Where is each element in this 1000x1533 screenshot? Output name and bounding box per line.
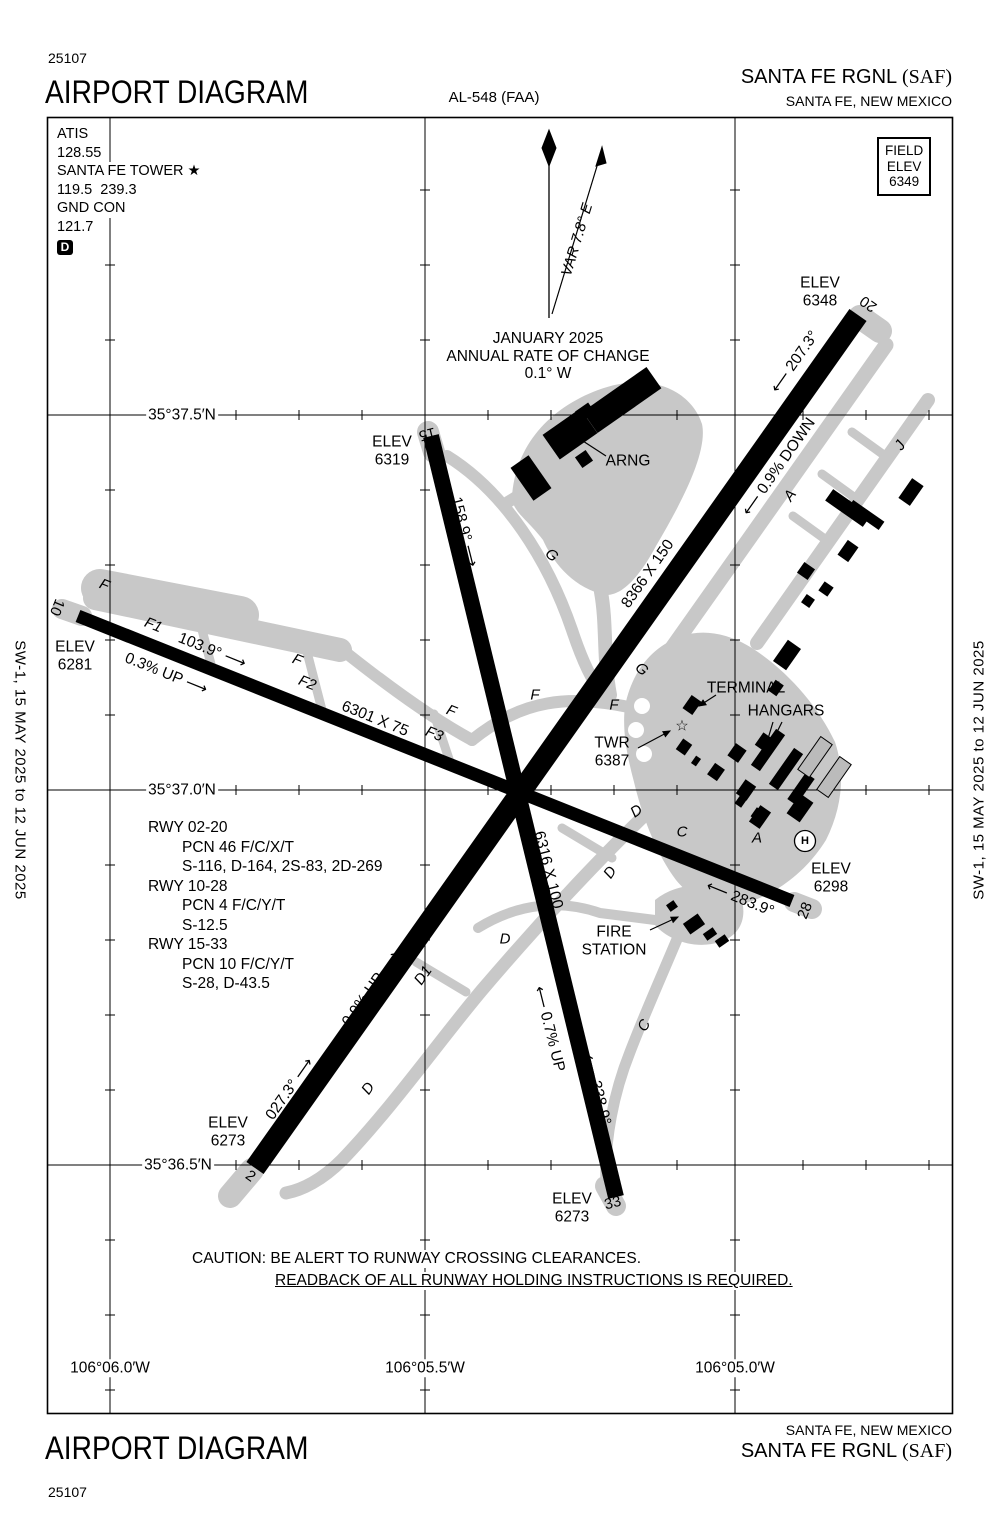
hdg-283: ⟵ 283.9° bbox=[704, 877, 777, 920]
lon-106-05-0w: 106°05.0′W bbox=[693, 1359, 777, 1377]
twy-a-a: A bbox=[781, 487, 801, 505]
twy-d-d: D bbox=[359, 1080, 379, 1099]
hdg-338: ⟵ 338.9° bbox=[580, 1053, 614, 1127]
twy-j: J bbox=[892, 438, 910, 454]
twy-g-b: G bbox=[631, 660, 651, 680]
tower-star-icon: ☆ bbox=[675, 719, 688, 736]
elev-rwy2: ELEV 6273 bbox=[208, 1115, 248, 1150]
rwy20-number: 20 bbox=[857, 291, 880, 314]
rwy2-number: 2 bbox=[242, 1168, 259, 1187]
slope-09-down: ⟵ 0.9% DOWN bbox=[739, 415, 819, 519]
rwy15-number: 15 bbox=[417, 423, 437, 443]
twy-f2: F2 bbox=[296, 673, 319, 695]
twy-d-b: D bbox=[601, 864, 621, 883]
twy-f-e: F bbox=[609, 698, 618, 715]
rwy10-number: 10 bbox=[45, 596, 67, 618]
slope-09-up: 0.9% UP ⟶ bbox=[339, 948, 403, 1030]
twy-f-b: F bbox=[290, 651, 305, 670]
airport-diagram-page: 25107 AIRPORT DIAGRAM AL-548 (FAA) SANTA… bbox=[0, 0, 1000, 1533]
dim-rwy10-28: 6301 X 75 bbox=[339, 698, 411, 741]
twy-f-c: F bbox=[444, 702, 459, 721]
helipad-h: H bbox=[801, 835, 809, 847]
twy-a-b: A bbox=[752, 831, 762, 848]
twy-d-c: D bbox=[500, 932, 511, 949]
twy-g-a: G bbox=[541, 546, 561, 566]
chart-labels-layer: ELEV 634820⟵ 207.3°⟵ 0.9% DOWN8366 X 150… bbox=[0, 0, 1000, 1533]
hdg-027: 027.3° ⟶ bbox=[262, 1055, 317, 1124]
elev-rwy20: ELEV 6348 bbox=[800, 275, 840, 310]
var-label: VAR 7.8° E bbox=[559, 202, 597, 279]
twy-f1: F1 bbox=[142, 615, 165, 637]
twy-d-a: D bbox=[628, 802, 647, 822]
hdg-103: 103.9° ⟶ bbox=[176, 629, 249, 672]
hdg-158: 158.9° ⟶ bbox=[447, 495, 481, 569]
twy-d1: D1 bbox=[412, 963, 437, 988]
label-hangars: HANGARS bbox=[748, 702, 825, 720]
elev-rwy15: ELEV 6319 bbox=[372, 434, 412, 469]
hdg-207: ⟵ 207.3° bbox=[767, 328, 822, 397]
twy-f-a: F bbox=[97, 576, 112, 595]
lat-35-37-5n: 35°37.5′N bbox=[146, 406, 218, 424]
elev-rwy33: ELEV 6273 bbox=[552, 1191, 592, 1226]
slope-03-up: 0.3% UP ⟶ bbox=[122, 650, 210, 699]
mag-var-note: JANUARY 2025 ANNUAL RATE OF CHANGE 0.1° … bbox=[446, 330, 649, 383]
rwy33-number: 33 bbox=[603, 1194, 623, 1214]
twy-c-b: C bbox=[635, 1017, 655, 1035]
elev-rwy10: ELEV 6281 bbox=[55, 639, 95, 674]
twy-c-a: C bbox=[677, 825, 688, 842]
label-fire-station: FIRE STATION bbox=[582, 924, 647, 959]
label-twr: TWR 6387 bbox=[594, 735, 629, 770]
lat-35-36-5n: 35°36.5′N bbox=[142, 1156, 214, 1174]
lon-106-06-0w: 106°06.0′W bbox=[68, 1359, 152, 1377]
rwy28-number: 28 bbox=[795, 900, 817, 922]
slope-07-up: ⟵ 0.7% UP bbox=[530, 984, 568, 1073]
elev-rwy28: ELEV 6298 bbox=[811, 861, 851, 896]
dim-rwy2-20: 8366 X 150 bbox=[618, 537, 678, 612]
twy-f-d: F bbox=[530, 688, 539, 705]
twy-f3: F3 bbox=[423, 724, 446, 746]
dim-rwy15-33: 6316 X 100 bbox=[530, 829, 566, 910]
label-arng: ARNG bbox=[606, 452, 651, 470]
label-terminal: TERMINAL bbox=[707, 679, 785, 697]
lat-35-37-0n: 35°37.0′N bbox=[146, 781, 218, 799]
lon-106-05-5w: 106°05.5′W bbox=[383, 1359, 467, 1377]
